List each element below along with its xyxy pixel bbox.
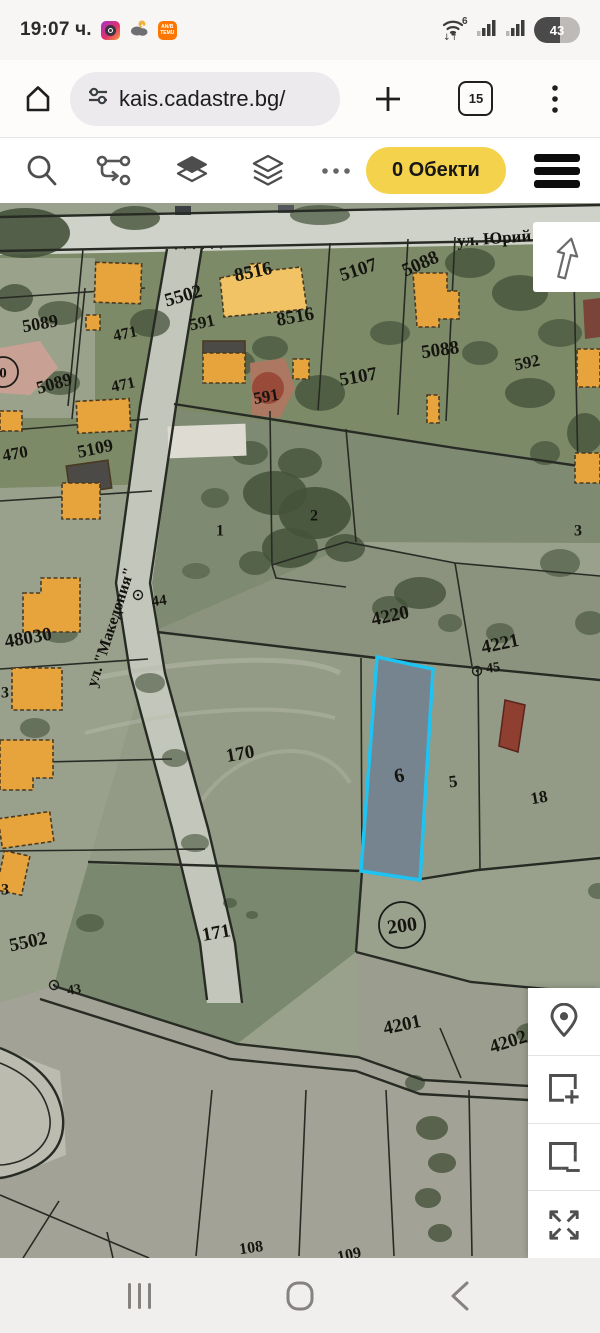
layer-stack-button[interactable] <box>230 152 306 190</box>
back-button[interactable] <box>430 1266 490 1326</box>
site-settings-icon[interactable] <box>86 84 110 113</box>
phone-screen: 19:07 ч. AN/B TEMU <box>0 0 600 1333</box>
circled-point-label: 200 <box>386 913 419 939</box>
satellite-map: 5089471550285168516591510750884715089591… <box>0 203 600 1258</box>
select-subtract-button[interactable] <box>528 1123 600 1191</box>
tab-switcher-button[interactable]: 15 <box>436 81 515 116</box>
map-app-toolbar: 0 Обекти <box>0 138 600 203</box>
cellular-signal-icon <box>476 18 498 43</box>
clock: 19:07 ч. <box>20 19 92 41</box>
android-nav-bar <box>0 1258 600 1333</box>
wifi-icon: 6 ↓↑ <box>441 15 469 46</box>
browser-menu-button[interactable] <box>526 82 584 116</box>
survey-point-dot <box>476 670 478 672</box>
parcel-number-label: 3 <box>574 523 582 540</box>
parcel-number-label: 3 <box>1 685 9 702</box>
browser-address-bar: kais.cadastre.bg/ 15 <box>0 60 600 138</box>
home-nav-button[interactable] <box>270 1266 330 1326</box>
survey-point-dot <box>53 984 55 986</box>
circled-point-label: 0 <box>0 365 7 381</box>
svg-text:↓↑: ↓↑ <box>443 33 458 41</box>
parcel-number-label: 1 <box>216 523 224 540</box>
home-button[interactable] <box>16 83 60 115</box>
parcel-number-label: 2 <box>310 508 318 525</box>
select-add-button[interactable] <box>528 1055 600 1123</box>
menu-hamburger-button[interactable] <box>506 150 590 192</box>
survey-point-label: 45 <box>485 660 501 677</box>
warehouse-roof <box>167 424 246 459</box>
layers-icon-button[interactable] <box>154 152 230 190</box>
new-tab-button[interactable] <box>350 83 426 115</box>
weather-icon <box>129 19 149 42</box>
temu-icon: AN/B TEMU <box>158 21 177 40</box>
search-button[interactable] <box>10 153 74 189</box>
zoom-extent-button[interactable] <box>528 1190 600 1258</box>
survey-point-label: 44 <box>151 592 169 610</box>
cadastre-map-viewport[interactable]: 5089471550285168516591510750884715089591… <box>0 203 600 1258</box>
survey-point-label: 43 <box>66 982 82 999</box>
recents-button[interactable] <box>110 1266 170 1326</box>
url-bar[interactable]: kais.cadastre.bg/ <box>70 72 340 126</box>
map-tool-panel <box>528 988 600 1258</box>
status-bar: 19:07 ч. AN/B TEMU <box>0 0 600 60</box>
tab-count: 15 <box>458 81 493 116</box>
instagram-icon <box>101 21 120 40</box>
survey-point-dot <box>137 594 139 596</box>
route-tool-button[interactable] <box>74 152 154 190</box>
svg-text:6: 6 <box>462 16 468 27</box>
cellular-signal-icon-2 <box>505 18 527 43</box>
north-arrow-box <box>533 222 600 292</box>
more-options-button[interactable] <box>306 166 366 176</box>
north-arrow-icon <box>533 222 600 292</box>
battery-percent: 43 <box>534 17 580 43</box>
parcel-number-label: 108 <box>238 1238 264 1258</box>
parcel-number-label: 3 <box>1 882 9 899</box>
battery-icon: 43 <box>534 17 580 43</box>
url-text[interactable]: kais.cadastre.bg/ <box>119 86 285 112</box>
locate-button[interactable] <box>528 988 600 1055</box>
parcel-number-label: 18 <box>529 787 549 809</box>
objects-count-button[interactable]: 0 Обекти <box>366 147 506 194</box>
